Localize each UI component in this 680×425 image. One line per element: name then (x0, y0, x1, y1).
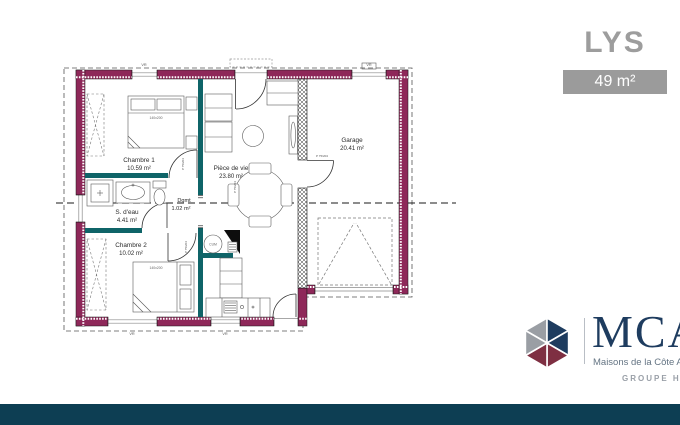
chambre2-furniture: 140x200 (87, 239, 194, 312)
door-size-label: P 75/204 (184, 241, 188, 253)
bed1-size-label: 140x200 (149, 116, 162, 120)
garage-name: Garage (341, 137, 363, 144)
sdeau-door-swing (142, 203, 167, 228)
nightstand (186, 136, 197, 149)
garage-door-opening (315, 285, 393, 294)
window-kitchen (211, 317, 240, 326)
living-furniture: CUM (204, 81, 298, 317)
chambre2-name: Chambre 2 (115, 242, 147, 249)
door-size-label: P 75/204 (316, 154, 328, 158)
garage-separation-wall (298, 79, 307, 288)
sdeau-fixtures (87, 180, 166, 206)
degagement-name: Dgmt (177, 198, 191, 204)
washbasin (116, 182, 150, 203)
garage-area: 20.41 m² (340, 146, 364, 152)
logo-divider (584, 318, 585, 364)
chambre1-area: 10.59 m² (127, 166, 151, 172)
chair (249, 163, 271, 174)
back-door-opening (274, 317, 298, 326)
piece-de-vie-name: Pièce de vie (214, 165, 249, 172)
nightstand (186, 97, 197, 110)
sdeau-name: S. d'eau (115, 209, 139, 216)
brand-name: MCA (592, 305, 680, 358)
entry-canopy (230, 59, 272, 67)
front-door-opening (230, 59, 272, 79)
kitchen-counter (206, 298, 270, 317)
sdeau-area: 4.41 m² (117, 218, 137, 224)
shutter-label: VR (366, 63, 372, 67)
chambre1-furniture: 140x200 (87, 94, 197, 156)
kitchen-unit (220, 258, 242, 298)
back-door-swing (273, 294, 296, 317)
radiator (289, 116, 298, 154)
shutter-label: VR (222, 332, 228, 336)
mca-cube-logo (518, 316, 576, 370)
chair (281, 184, 292, 206)
bed2-size-label: 140x200 (149, 266, 162, 270)
window-chambre1 (132, 70, 157, 79)
water-heater-label: CUM (209, 243, 217, 247)
piece-de-vie-area: 23.80 m² (219, 174, 243, 180)
shutter-label: VR (129, 332, 135, 336)
door-size-label: P 75/204 (233, 181, 237, 193)
degagement-area: 1.02 m² (172, 206, 191, 212)
footer-bar (0, 404, 680, 425)
door-size-label: P 75/204 (181, 158, 185, 170)
chambre2-door-swing (168, 233, 196, 261)
mca-branding: MCA Maisons de la Côte Atlantique GROUPE… (518, 310, 680, 394)
floor-plan: 140x200 140x200 (56, 56, 461, 338)
storage-unit (205, 94, 232, 121)
shutter-label: VR (141, 63, 147, 67)
garage-access-door-swing (307, 161, 334, 188)
model-name: LYS (563, 26, 667, 60)
brand-subtitle: Maisons de la Côte Atlantique (593, 357, 680, 368)
brand-group: GROUPE HEXAÔM (622, 374, 680, 383)
window-chambre2 (108, 317, 157, 326)
front-door-swing (236, 79, 266, 109)
window-sdeau (76, 195, 85, 222)
area-badge: 49 m² (563, 70, 667, 94)
wc (153, 181, 166, 188)
garage-door-swing-area (318, 218, 392, 285)
chair (249, 216, 271, 227)
chambre2-area: 10.02 m² (119, 251, 143, 257)
armchair (243, 126, 264, 147)
chambre1-name: Chambre 1 (123, 157, 155, 164)
